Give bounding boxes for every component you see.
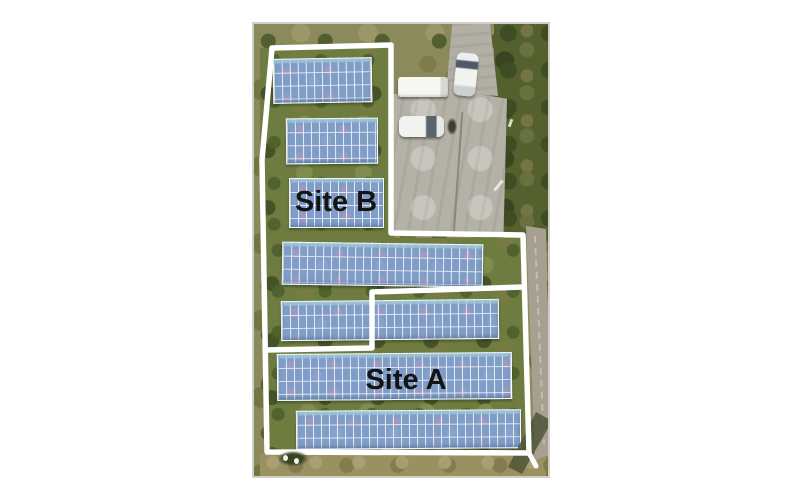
solar-array-row-5 [281, 299, 499, 341]
white-marker-dot [283, 455, 288, 461]
box-truck [398, 77, 448, 97]
white-marker-dot [294, 458, 299, 464]
site-b-label: Site B [284, 188, 388, 217]
solar-array-row-1 [273, 57, 373, 104]
road-markings [535, 236, 544, 444]
solar-array-row-2 [286, 118, 378, 165]
side-road [526, 226, 548, 460]
white-sedan [399, 116, 444, 137]
person-spot [447, 118, 457, 135]
aerial-photo: Site B Site A [252, 22, 550, 478]
white-car [453, 52, 479, 97]
page-root: { "page": { "background": "#ffffff" }, "… [0, 0, 800, 500]
solar-array-row-7 [296, 409, 521, 450]
parking-area [389, 90, 507, 236]
solar-array-row-4 [282, 242, 484, 288]
site-a-label: Site A [354, 366, 458, 395]
